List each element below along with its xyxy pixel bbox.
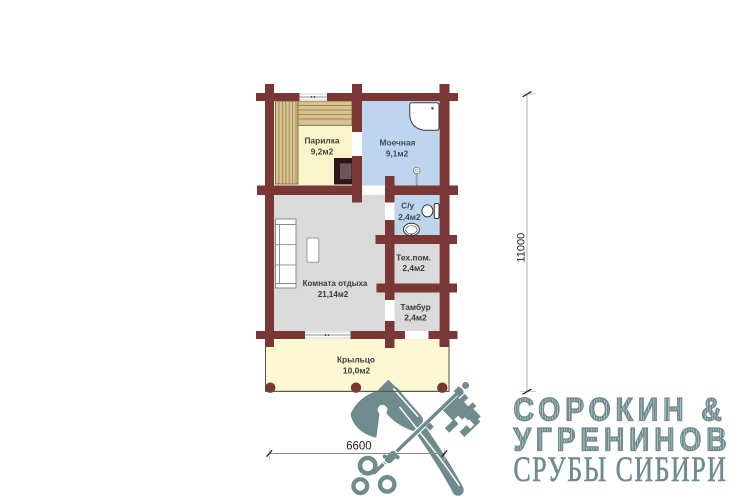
svg-text:21,14м2: 21,14м2 xyxy=(318,290,349,299)
svg-text:Тамбур: Тамбур xyxy=(400,302,430,312)
svg-text:Моечная: Моечная xyxy=(379,137,415,147)
svg-text:2,4м2: 2,4м2 xyxy=(404,313,427,323)
svg-text:Крыльцо: Крыльцо xyxy=(337,355,375,365)
svg-text:9,2м2: 9,2м2 xyxy=(311,146,334,156)
svg-text:Комната отдыха: Комната отдыха xyxy=(303,279,368,288)
svg-text:Тех.пом.: Тех.пом. xyxy=(396,253,431,263)
svg-text:СРУБЫ СИБИРИ: СРУБЫ СИБИРИ xyxy=(513,449,727,489)
svg-text:11000: 11000 xyxy=(516,233,528,263)
svg-text:6600: 6600 xyxy=(346,441,372,453)
svg-text:Парилка: Парилка xyxy=(304,135,339,145)
svg-text:2,4м2: 2,4м2 xyxy=(398,212,421,222)
svg-text:С/у: С/у xyxy=(401,200,414,210)
svg-text:10,0м2: 10,0м2 xyxy=(343,366,370,376)
svg-text:9,1м2: 9,1м2 xyxy=(386,149,409,159)
svg-text:2,4м2: 2,4м2 xyxy=(402,263,425,273)
